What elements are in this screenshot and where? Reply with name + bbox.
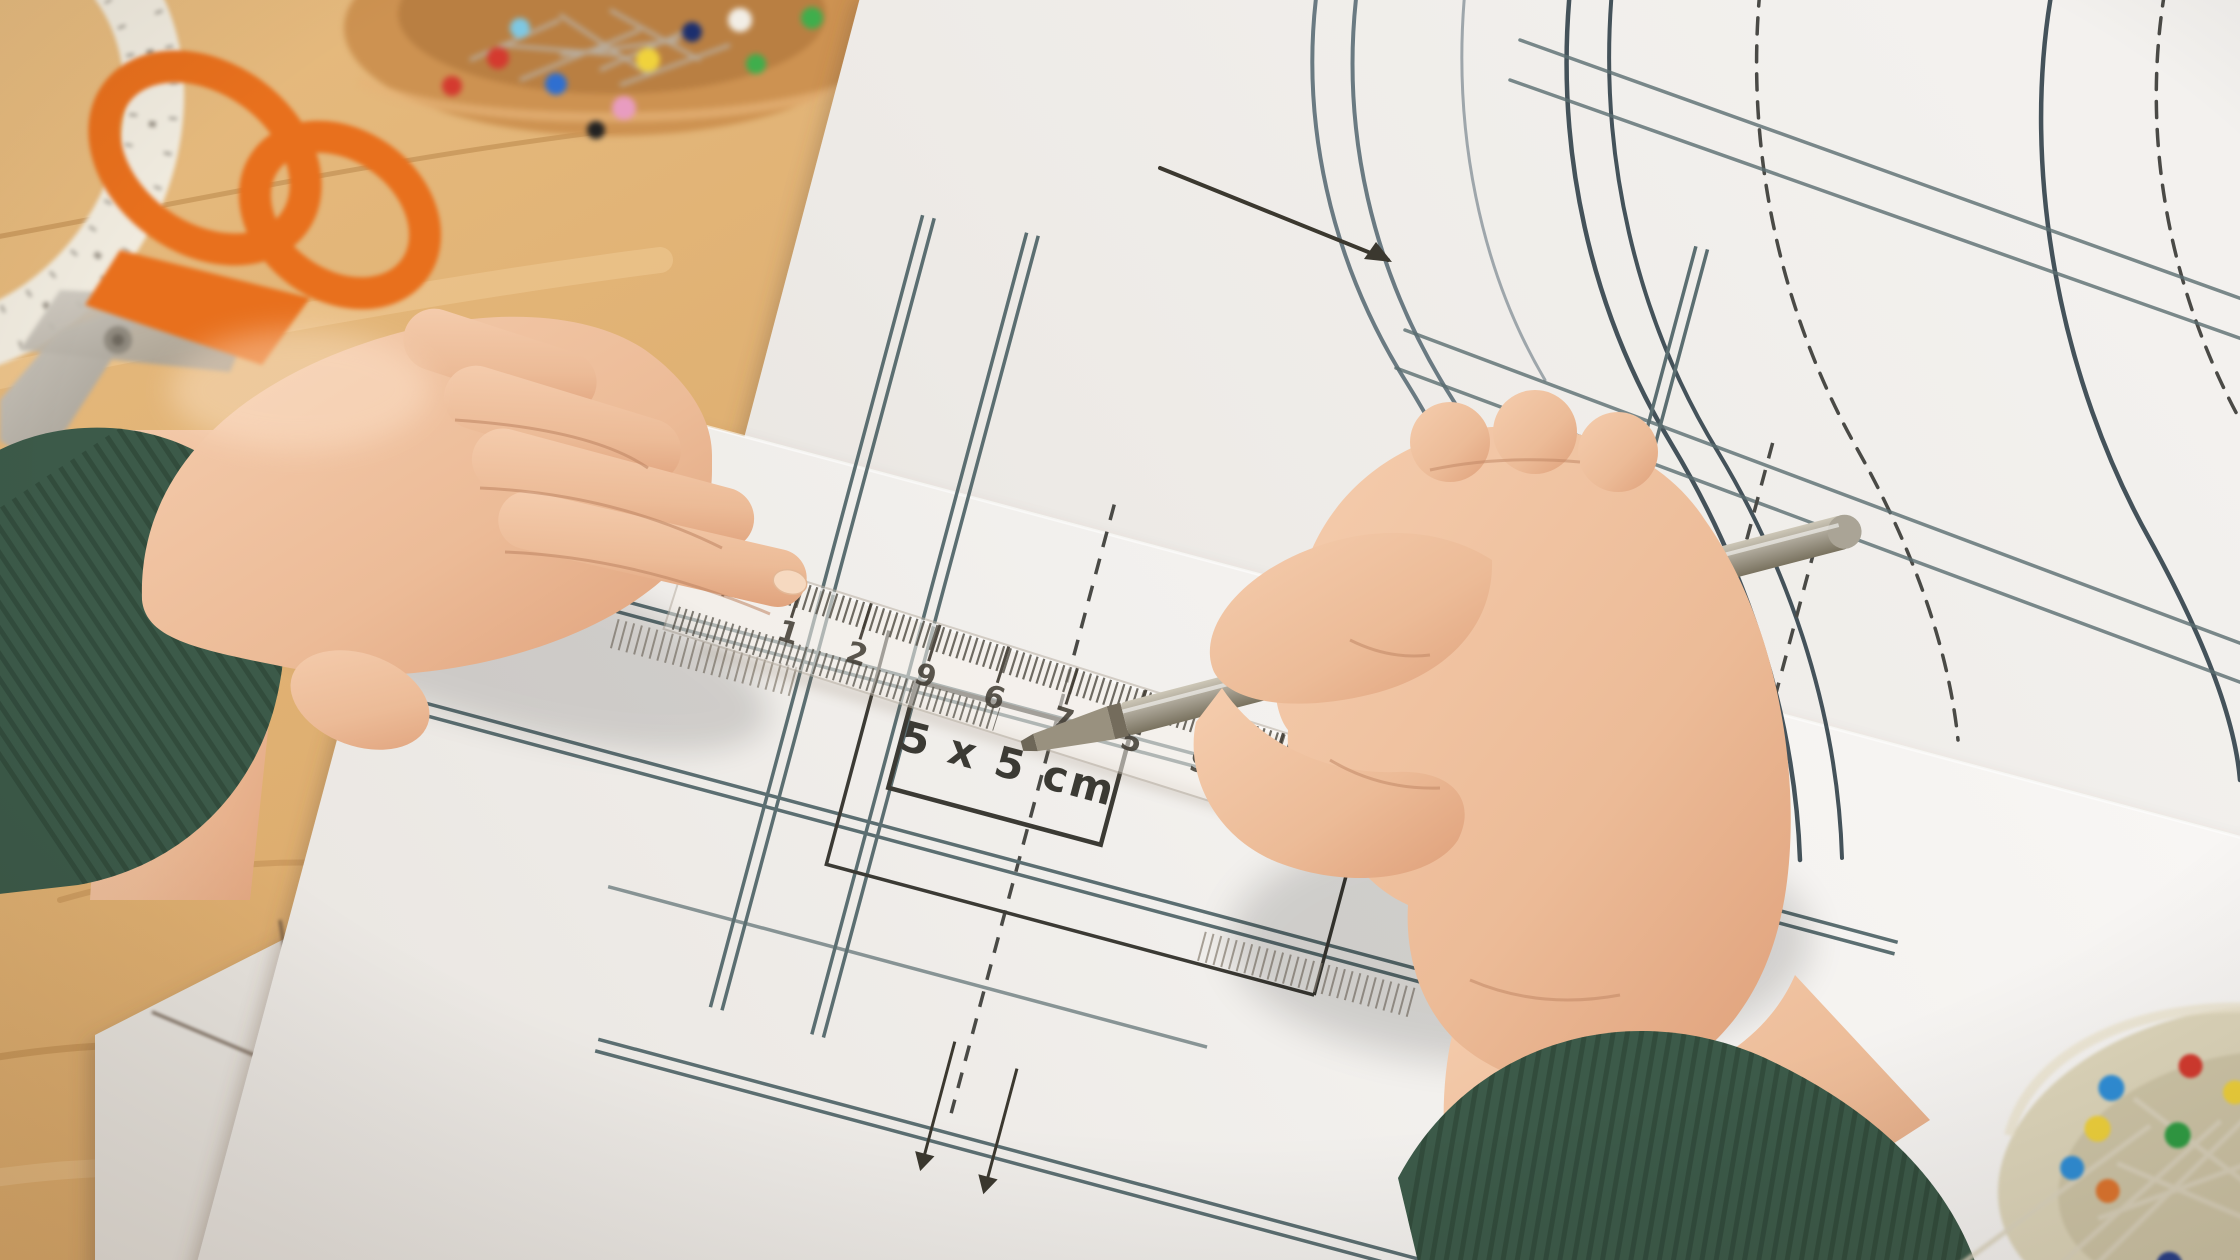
photo-stage: 5 x 5 cm 1 2 9 6 7 5 9 4 9 bbox=[0, 0, 2240, 1260]
vignette-overlay bbox=[0, 0, 2240, 1260]
photo-canvas: 5 x 5 cm 1 2 9 6 7 5 9 4 9 bbox=[0, 0, 2240, 1260]
